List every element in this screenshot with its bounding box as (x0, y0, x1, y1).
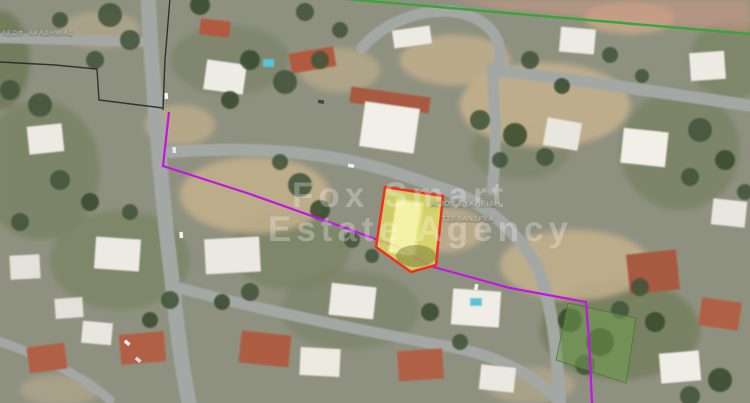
terrain-layer (0, 0, 750, 403)
listing-map-screenshot: Fox Smart Estate Agency ΛΕΩΦ. ΑΚΑΔΗΜΙΑΣ … (0, 0, 750, 403)
pool (470, 298, 482, 306)
satellite-map (0, 0, 750, 403)
pool (263, 59, 274, 67)
